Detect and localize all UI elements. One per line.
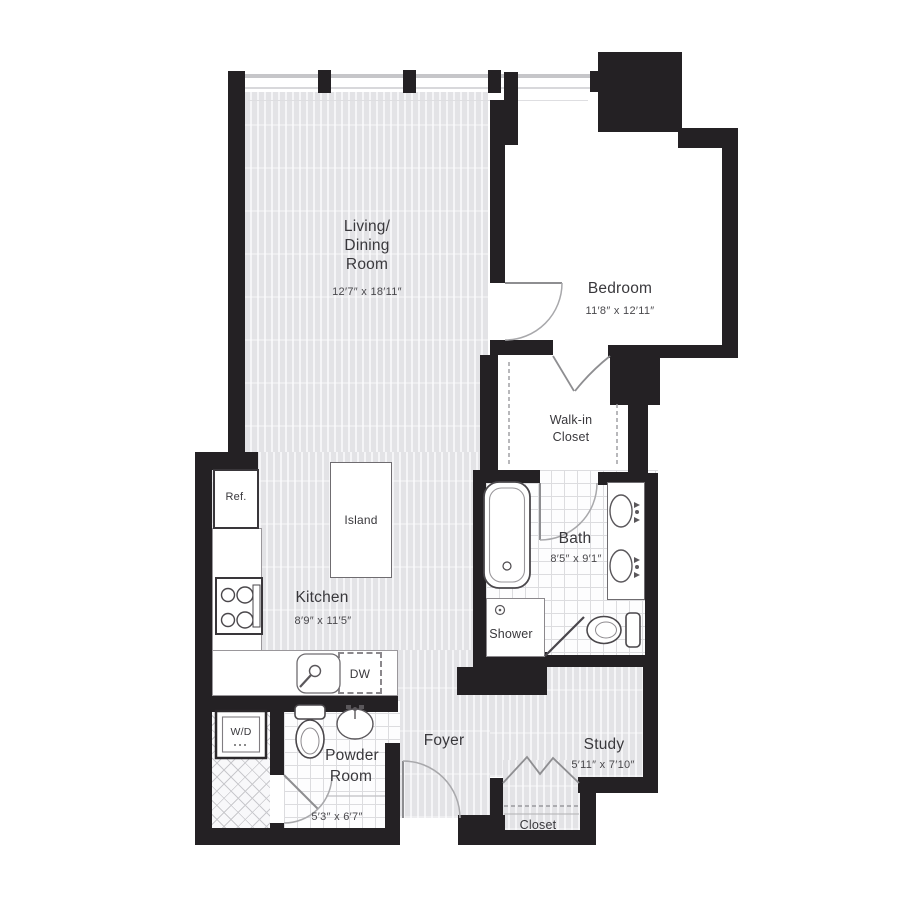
study-dims: 5′11″ x 7′10″	[571, 759, 634, 771]
living-room-label-3: Room	[346, 256, 388, 274]
powder-room-label-2: Room	[330, 768, 372, 786]
bath-label: Bath	[559, 530, 592, 548]
refrigerator-label: Ref.	[226, 491, 247, 503]
walkin-closet-label-2: Closet	[553, 430, 590, 444]
sink-icon	[610, 550, 640, 582]
living-room-dims: 12′7″ x 18′11″	[332, 286, 402, 298]
toilet-icon	[295, 705, 325, 758]
bedroom-label: Bedroom	[588, 280, 652, 298]
floor-plan: Living/ Dining Room 12′7″ x 18′11″ Bedro…	[0, 0, 900, 900]
shower-head-icon	[496, 606, 505, 615]
bath-dims: 8′5″ x 9′1″	[550, 553, 601, 565]
bathtub-icon	[484, 482, 530, 588]
fixtures-layer	[0, 0, 900, 900]
shower-door	[545, 617, 584, 656]
shower-label: Shower	[489, 627, 533, 641]
study-label: Study	[584, 736, 625, 754]
kitchen-label: Kitchen	[295, 589, 348, 607]
closet-bifold-doors	[503, 757, 579, 783]
stove-icon	[216, 578, 262, 634]
toilet-icon	[587, 613, 640, 647]
island-label: Island	[344, 513, 377, 527]
sink-icon	[610, 495, 640, 527]
entry-door	[403, 761, 460, 818]
sink-icon	[337, 705, 373, 739]
powder-room-label-1: Powder	[325, 747, 379, 765]
walkin-closet-doors	[553, 356, 610, 391]
kitchen-sink-icon	[297, 654, 340, 693]
living-room-label-2: Dining	[344, 237, 389, 255]
bedroom-dims: 11′8″ x 12′11″	[586, 305, 655, 317]
powder-room-dims: 5′3″ x 6′7″	[311, 811, 362, 823]
bedroom-door	[505, 283, 562, 340]
washer-dryer-label: W/D	[230, 726, 251, 738]
closet-label: Closet	[520, 818, 557, 832]
walkin-closet-label-1: Walk-in	[550, 413, 593, 427]
living-room-label-1: Living/	[344, 218, 390, 236]
dishwasher-label: DW	[350, 667, 370, 681]
kitchen-dims: 8′9″ x 11′5″	[295, 615, 352, 627]
foyer-label: Foyer	[424, 732, 465, 750]
